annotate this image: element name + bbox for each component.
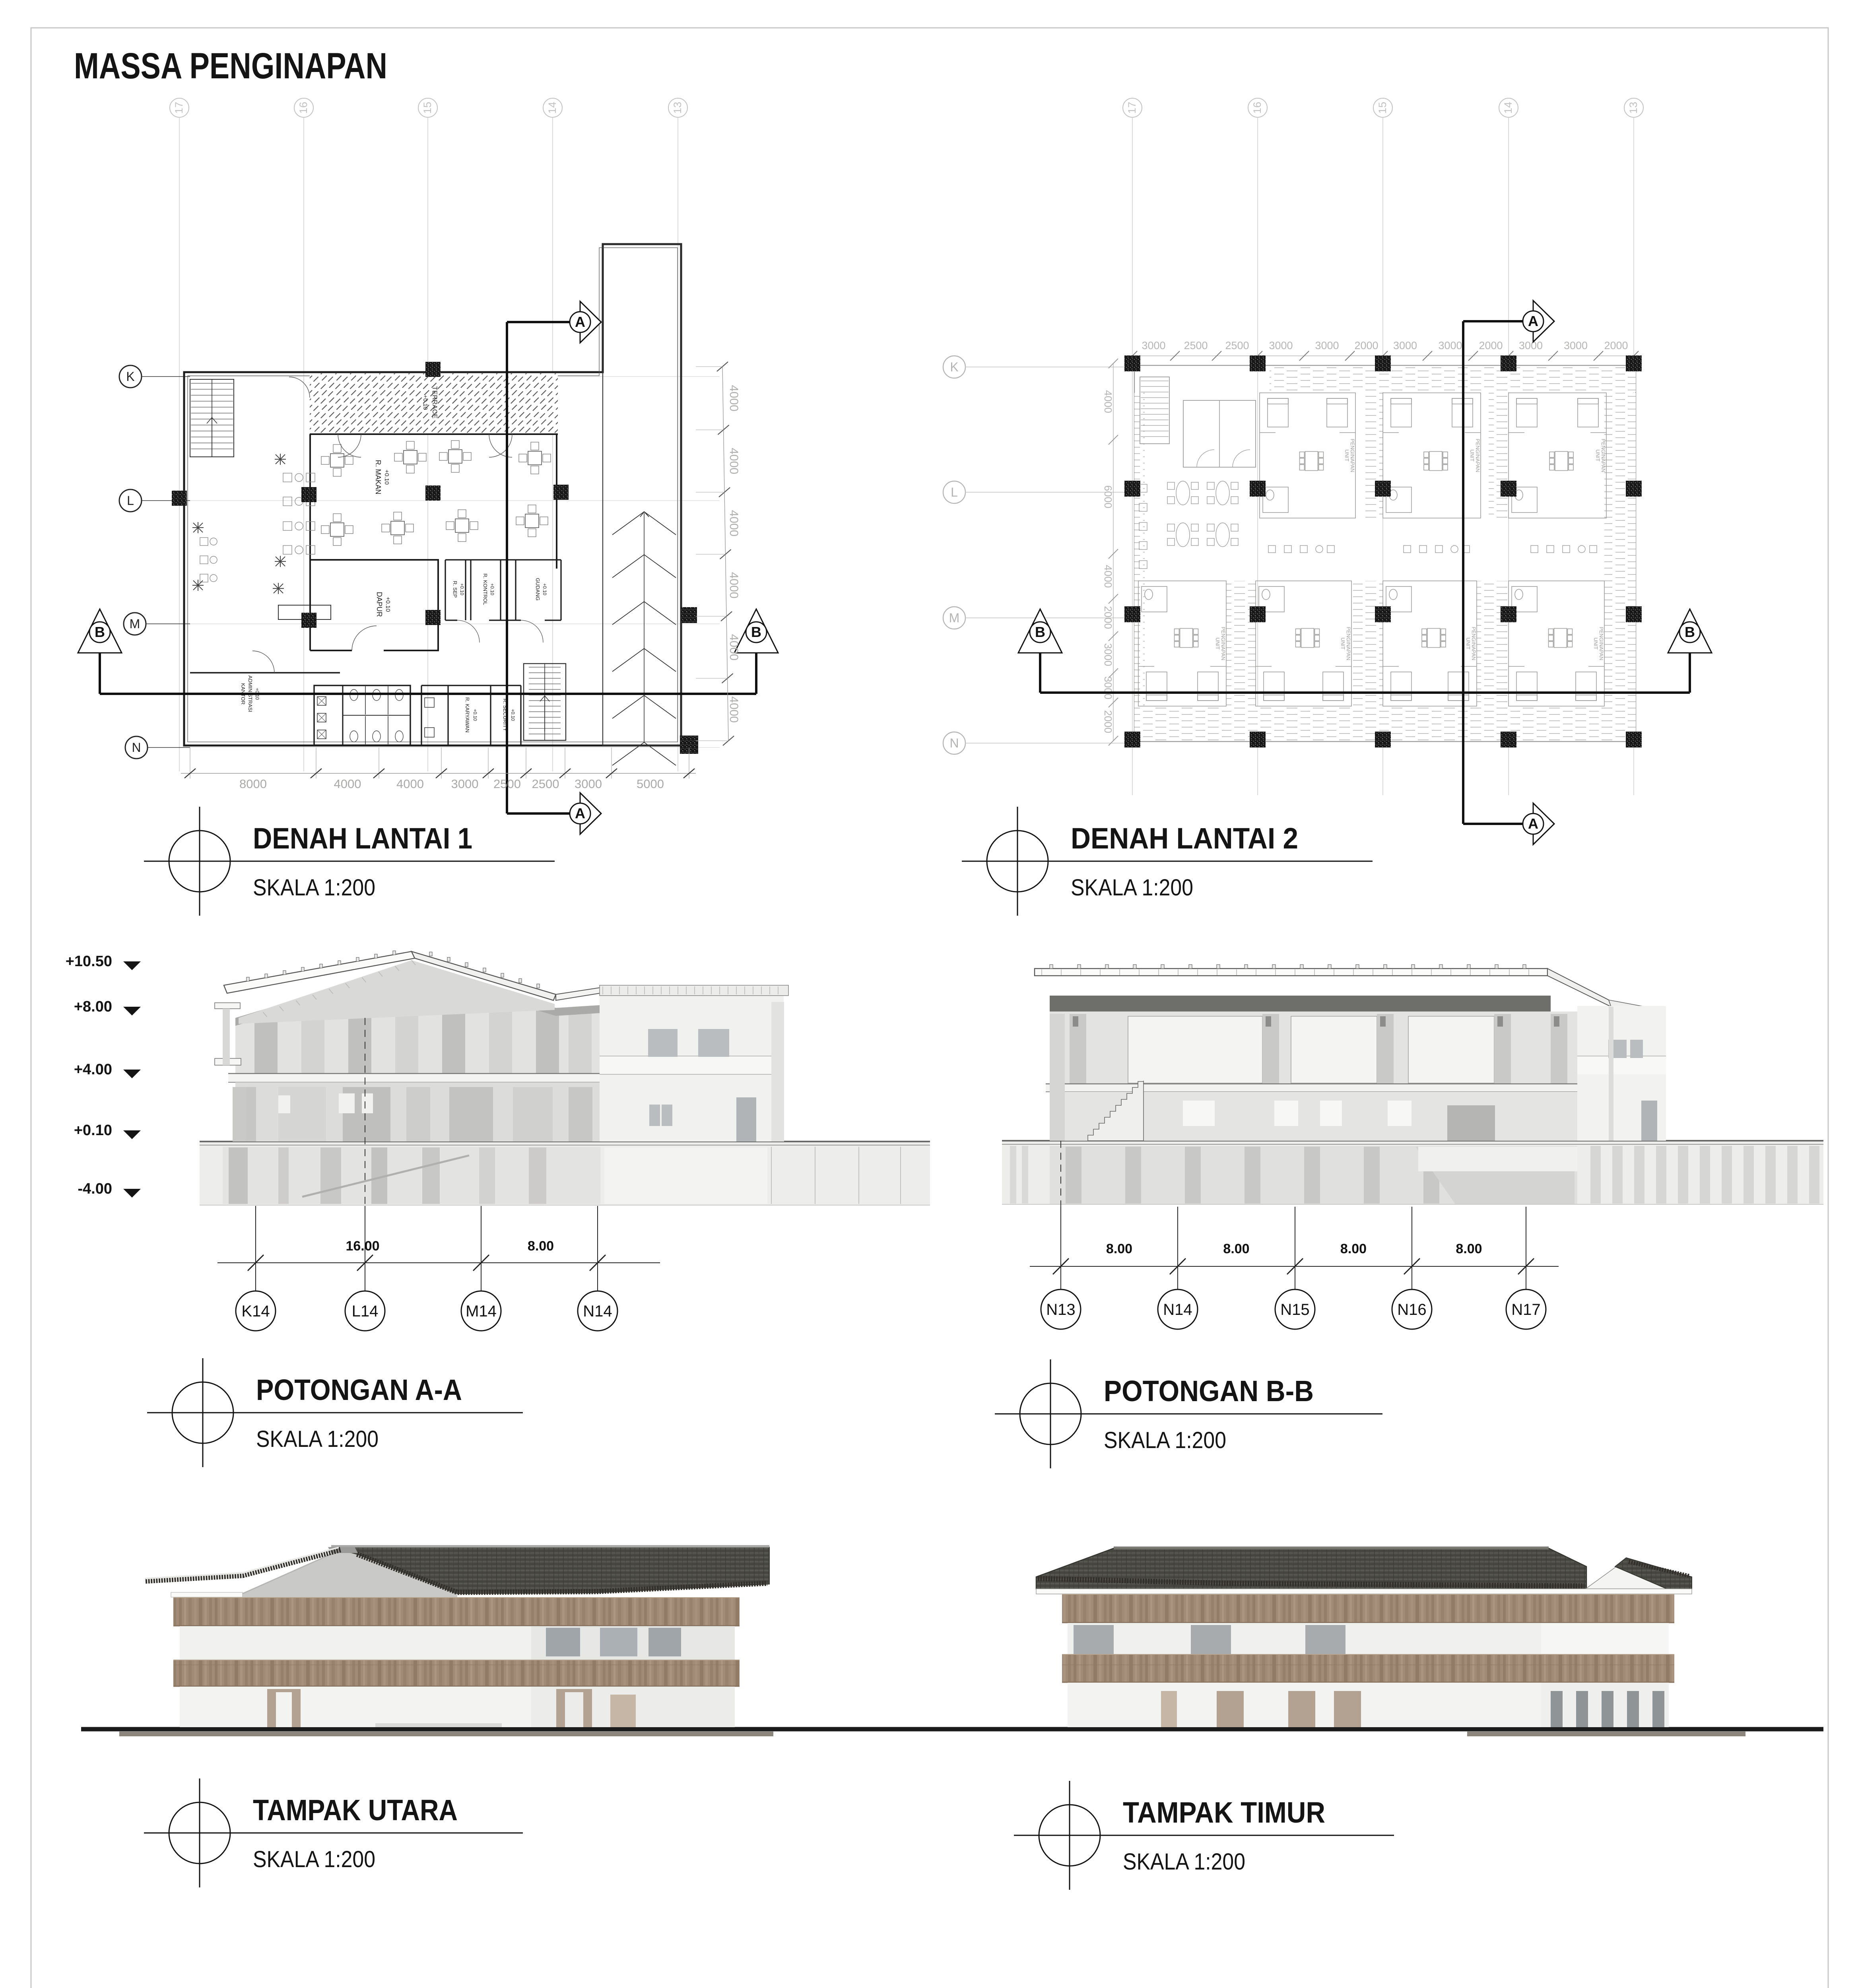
svg-text:+0.10: +0.10 [384, 597, 391, 612]
svg-text:4000: 4000 [1102, 565, 1114, 588]
svg-text:4000: 4000 [727, 510, 740, 537]
svg-text:2000: 2000 [1354, 340, 1378, 351]
svg-text:2500: 2500 [493, 777, 521, 791]
svg-text:3000: 3000 [1315, 340, 1339, 351]
svg-text:POTONGAN B-B: POTONGAN B-B [1104, 1375, 1314, 1408]
svg-text:SKALA 1:200: SKALA 1:200 [1071, 875, 1193, 901]
svg-text:3000: 3000 [1102, 643, 1114, 666]
svg-text:3000: 3000 [1393, 340, 1417, 351]
svg-text:3000: 3000 [1142, 340, 1165, 351]
svg-text:DENAH LANTAI 1: DENAH LANTAI 1 [253, 822, 472, 855]
svg-text:PENGINAPAN: PENGINAPAN [1598, 627, 1604, 660]
svg-text:DAPUR: DAPUR [375, 592, 383, 617]
svg-text:N: N [132, 740, 141, 755]
svg-text:2500: 2500 [532, 777, 559, 791]
svg-text:SKALA 1:200: SKALA 1:200 [1104, 1427, 1226, 1453]
svg-text:L: L [951, 485, 958, 499]
svg-text:4000: 4000 [334, 777, 361, 791]
svg-text:8.00: 8.00 [1340, 1241, 1367, 1256]
svg-text:N17: N17 [1511, 1301, 1540, 1318]
svg-text:8000: 8000 [239, 777, 267, 791]
svg-text:K: K [126, 369, 134, 384]
svg-text:16.00: 16.00 [346, 1239, 379, 1254]
svg-text:4000: 4000 [727, 696, 740, 723]
svg-text:SKALA 1:200: SKALA 1:200 [253, 1846, 375, 1872]
svg-text:R. MAKAN: R. MAKAN [374, 460, 382, 494]
svg-text:R. KARYAWAN: R. KARYAWAN [464, 697, 470, 733]
svg-text:M: M [130, 617, 140, 631]
svg-text:N14: N14 [583, 1303, 612, 1320]
svg-text:SKALA 1:200: SKALA 1:200 [1123, 1849, 1245, 1875]
svg-text:+8.00: +8.00 [74, 998, 112, 1015]
svg-text:-4.00: -4.00 [78, 1180, 112, 1197]
svg-text:+0.10: +0.10 [422, 395, 429, 410]
svg-text:17: 17 [173, 102, 185, 114]
svg-text:N15: N15 [1280, 1301, 1309, 1318]
svg-text:A: A [1528, 815, 1538, 832]
svg-text:+0.10: +0.10 [489, 583, 495, 596]
svg-text:B: B [1035, 624, 1045, 640]
svg-text:3000: 3000 [1102, 676, 1114, 699]
svg-text:UNIT: UNIT [1469, 449, 1475, 461]
svg-text:8.00: 8.00 [1106, 1241, 1132, 1256]
svg-text:2000: 2000 [1102, 606, 1114, 629]
svg-text:PENGINAPAN: PENGINAPAN [1345, 627, 1351, 660]
svg-text:B: B [95, 624, 105, 640]
svg-text:2000: 2000 [1604, 340, 1628, 351]
svg-text:TERRACE: TERRACE [431, 386, 439, 418]
svg-text:N13: N13 [1046, 1301, 1075, 1318]
svg-text:UNIT: UNIT [1465, 637, 1471, 649]
svg-text:SKALA 1:200: SKALA 1:200 [256, 1426, 379, 1452]
svg-text:14: 14 [1502, 102, 1514, 114]
svg-text:A: A [575, 805, 585, 821]
svg-text:SKALA 1:200: SKALA 1:200 [253, 875, 375, 901]
svg-text:+0.10: +0.10 [459, 583, 465, 596]
svg-text:+0.10: +0.10 [74, 1122, 112, 1139]
svg-text:+0.10: +0.10 [510, 709, 516, 721]
svg-text:N14: N14 [1163, 1301, 1192, 1318]
svg-text:3000: 3000 [575, 777, 602, 791]
svg-text:16: 16 [1251, 102, 1263, 114]
svg-text:L14: L14 [352, 1303, 379, 1320]
svg-text:M14: M14 [466, 1303, 497, 1320]
svg-text:+0.10: +0.10 [472, 709, 478, 721]
svg-text:K: K [950, 360, 958, 374]
svg-text:3000: 3000 [1438, 340, 1462, 351]
svg-text:A: A [1528, 313, 1538, 329]
svg-text:3000: 3000 [1519, 340, 1543, 351]
svg-text:3000: 3000 [1269, 340, 1293, 351]
svg-text:DENAH LANTAI 2: DENAH LANTAI 2 [1071, 822, 1298, 855]
svg-text:15: 15 [421, 102, 433, 114]
svg-text:4000: 4000 [1102, 390, 1114, 413]
svg-text:13: 13 [672, 102, 683, 114]
svg-text:B: B [751, 624, 761, 640]
svg-text:A: A [575, 314, 585, 330]
svg-text:4000: 4000 [727, 448, 740, 474]
svg-text:N16: N16 [1397, 1301, 1426, 1318]
svg-text:4000: 4000 [727, 634, 740, 661]
svg-text:PENGINAPAN: PENGINAPAN [1475, 439, 1481, 472]
svg-text:+4.00: +4.00 [74, 1061, 112, 1078]
svg-text:8.00: 8.00 [1456, 1241, 1482, 1256]
svg-text:2500: 2500 [1225, 340, 1249, 351]
svg-text:2500: 2500 [1184, 340, 1208, 351]
svg-text:2000: 2000 [1479, 340, 1503, 351]
svg-text:UNIT: UNIT [1593, 637, 1599, 649]
svg-text:PENGINAPAN: PENGINAPAN [1471, 627, 1477, 660]
svg-text:L: L [127, 493, 134, 508]
svg-text:4000: 4000 [396, 777, 424, 791]
svg-text:3000: 3000 [1564, 340, 1588, 351]
svg-text:5000: 5000 [637, 777, 664, 791]
svg-text:+10.50: +10.50 [66, 953, 112, 970]
svg-text:3000: 3000 [451, 777, 479, 791]
svg-text:N: N [949, 736, 959, 750]
svg-text:PENGINAPAN: PENGINAPAN [1600, 439, 1606, 472]
svg-text:GUDANG: GUDANG [535, 578, 541, 600]
svg-text:B: B [1685, 624, 1695, 640]
svg-text:UNIT: UNIT [1595, 449, 1601, 461]
svg-text:K14: K14 [241, 1303, 270, 1320]
svg-text:R. KONTROL: R. KONTROL [482, 573, 488, 605]
svg-text:MASSA PENGINAPAN: MASSA PENGINAPAN [74, 46, 387, 86]
svg-text:4000: 4000 [727, 385, 740, 412]
svg-text:8.00: 8.00 [528, 1239, 554, 1254]
svg-text:PENGINAPAN: PENGINAPAN [1349, 439, 1355, 472]
svg-text:UNIT: UNIT [1340, 637, 1346, 649]
svg-text:6000: 6000 [1102, 485, 1114, 509]
svg-text:16: 16 [297, 102, 309, 114]
svg-text:TAMPAK UTARA: TAMPAK UTARA [253, 1794, 458, 1827]
svg-text:17: 17 [1126, 102, 1138, 114]
svg-text:+0.10: +0.10 [542, 583, 548, 596]
svg-text:POTONGAN A-A: POTONGAN A-A [256, 1373, 462, 1406]
svg-text:UNIT: UNIT [1344, 449, 1350, 461]
svg-text:TAMPAK TIMUR: TAMPAK TIMUR [1123, 1796, 1325, 1829]
svg-text:8.00: 8.00 [1223, 1241, 1249, 1256]
svg-text:13: 13 [1627, 102, 1639, 114]
svg-text:R. SEP: R. SEP [452, 581, 458, 598]
svg-text:15: 15 [1377, 102, 1388, 114]
svg-text:4000: 4000 [727, 572, 740, 599]
svg-text:+0.10: +0.10 [383, 470, 390, 485]
svg-text:PENGINAPAN: PENGINAPAN [1220, 627, 1226, 660]
svg-text:M: M [949, 611, 960, 625]
svg-text:14: 14 [546, 102, 558, 114]
svg-text:2000: 2000 [1102, 710, 1114, 733]
svg-text:UNIT: UNIT [1215, 637, 1221, 649]
